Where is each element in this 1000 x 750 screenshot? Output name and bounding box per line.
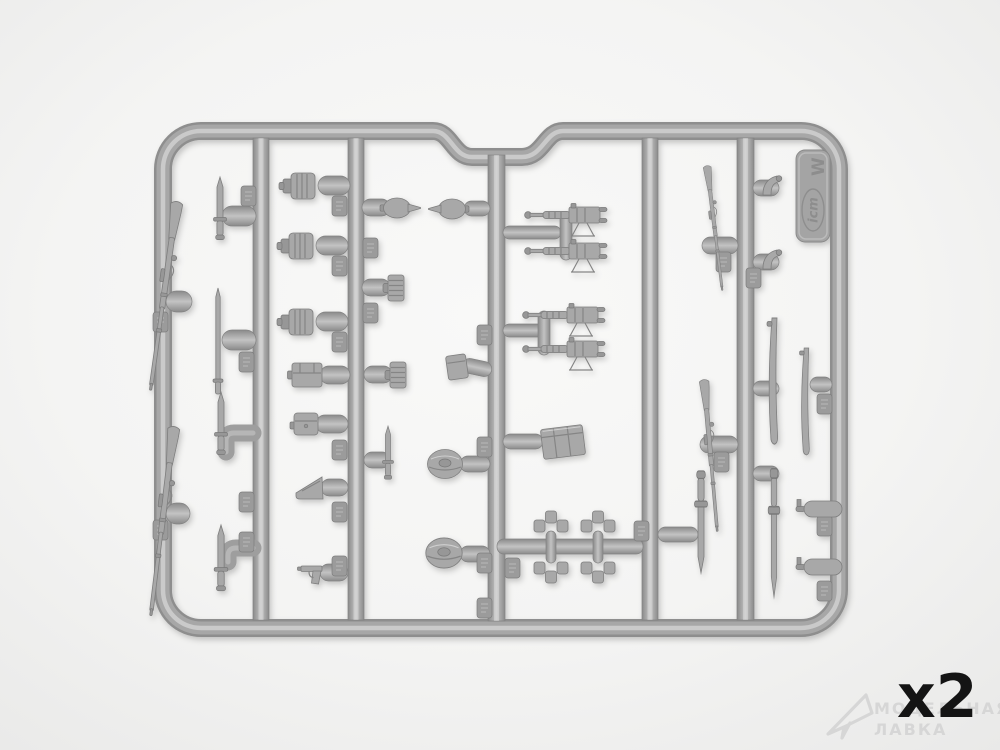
product-photo: W icm МОДЕЛЬНАЯ ЛАВКА x2	[0, 0, 1000, 750]
photo-canvas: W icm МОДЕЛЬНАЯ ЛАВКА x2	[0, 0, 1000, 750]
